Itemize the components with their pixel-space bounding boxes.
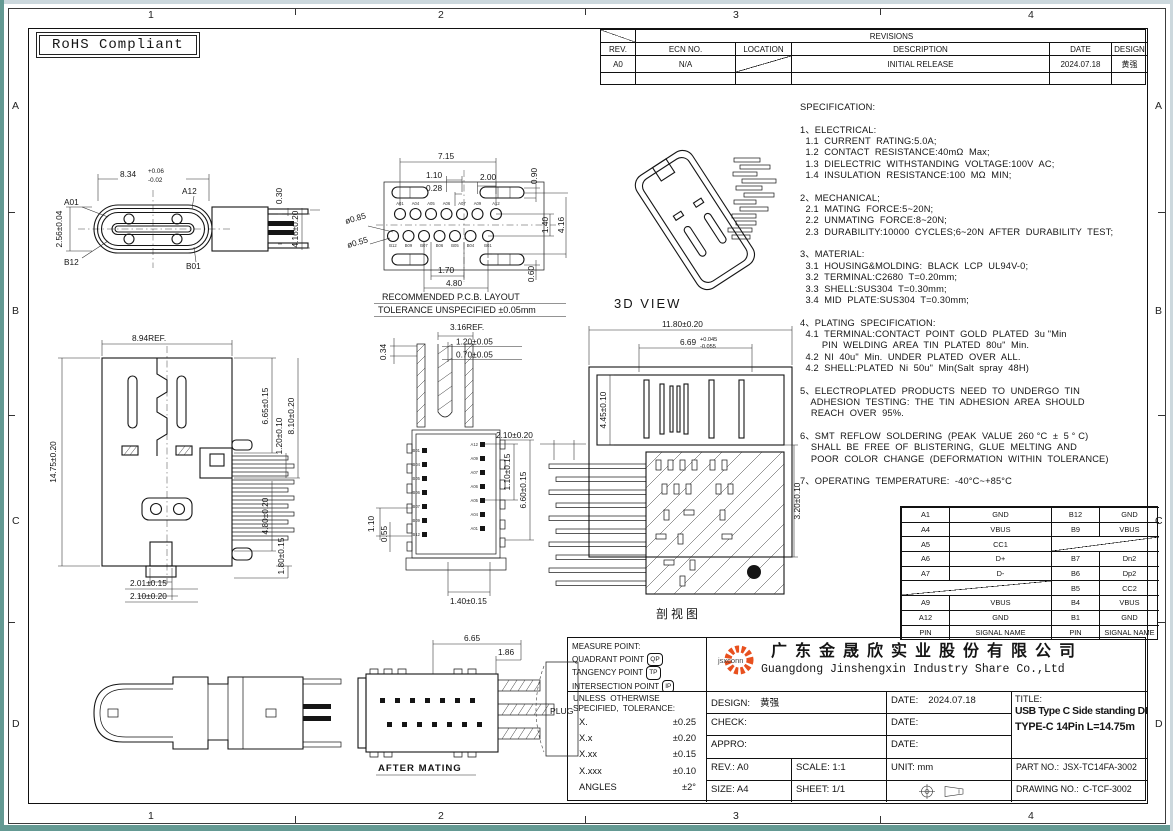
dim-445: 4.45±0.10 xyxy=(598,391,608,428)
iso-leads xyxy=(728,158,776,239)
section-dot xyxy=(747,565,761,579)
front-view-centerlines xyxy=(78,190,230,268)
part-title-line2: TYPE-C 14Pin L=14.75m xyxy=(1015,719,1144,736)
zone-number: 3 xyxy=(733,810,739,822)
pcb-pads-top xyxy=(395,209,502,220)
mating-plug-hatch xyxy=(502,680,549,739)
svg-text:B04: B04 xyxy=(413,462,421,467)
pin-cell: GND xyxy=(1099,507,1159,522)
dim-669-up: +0.045 xyxy=(700,337,717,343)
dim-316: 3.16REF. xyxy=(450,322,484,332)
size-cell: SIZE: A4 xyxy=(706,780,791,802)
pin-label-a12: A12 xyxy=(182,186,197,196)
pin-cell: A12 xyxy=(901,610,949,625)
tolerance-row: X.±0.25 xyxy=(573,714,706,730)
svg-text:B07: B07 xyxy=(420,243,428,248)
rohs-stamp: RoHS Compliant xyxy=(36,32,200,58)
side-pins-left xyxy=(422,448,427,537)
svg-text:B01: B01 xyxy=(413,448,421,453)
svg-text:A01: A01 xyxy=(471,526,479,531)
dim-665m: 6.65 xyxy=(464,633,481,643)
svg-text:A05: A05 xyxy=(427,201,435,206)
dim-total-height: 4.16±0.20 xyxy=(290,210,300,247)
zone-letter: B xyxy=(1155,305,1162,317)
pin-label-b12: B12 xyxy=(64,257,79,267)
svg-text:B05: B05 xyxy=(413,476,421,481)
pin-label-b01: B01 xyxy=(186,261,201,271)
revisions-header: REV. xyxy=(601,42,635,55)
zone-tick xyxy=(8,415,15,416)
pcb-layout-drawing: A01 A04 A05 A06 A07 A09 A12 B12 B09 B07 … xyxy=(338,132,600,320)
zone-number: 4 xyxy=(1028,810,1034,822)
zone-number: 1 xyxy=(148,9,154,21)
pcb-caption-1: RECOMMENDED P.C.B. LAYOUT xyxy=(382,292,520,302)
dim-416: 4.16 xyxy=(556,217,566,234)
revisions-header: DESIGN xyxy=(1111,42,1147,55)
unit-cell: UNIT: mm xyxy=(886,758,1011,780)
revision-design: 黄强 xyxy=(1111,55,1147,72)
dim-070: 0.70±0.05 xyxy=(456,350,493,360)
title-cell: TITLE: USB Type C Side standing DIP TYPE… xyxy=(1011,691,1147,758)
dim-034: 0.34 xyxy=(378,344,388,361)
pin-cell: B5 xyxy=(1051,580,1099,595)
dim-height: 2.56±0.04 xyxy=(54,210,64,247)
svg-text:A04: A04 xyxy=(412,201,420,206)
dim-width-tol-dn: -0.02 xyxy=(148,177,163,184)
dim-669-dn: -0.055 xyxy=(700,344,716,350)
dim-width-tol-up: +0.06 xyxy=(148,168,164,175)
svg-text:B05: B05 xyxy=(451,243,459,248)
revision-location-cell xyxy=(735,55,791,72)
page-edge-top xyxy=(0,0,1173,4)
mating-view-drawing: PLUG 6.65 1.86 AFTER MATING xyxy=(78,632,578,788)
dim-665: 6.65±0.15 xyxy=(260,387,270,424)
zone-number: 2 xyxy=(438,9,444,21)
company-name-en: Guangdong Jinshengxin Industry Share Co.… xyxy=(761,662,1145,678)
revisions-header: LOCATION xyxy=(735,42,791,55)
dim-120: 1.20±0.10 xyxy=(274,417,284,454)
revision-ecn: N/A xyxy=(635,55,735,72)
after-mating-caption: AFTER MATING xyxy=(378,763,462,774)
svg-text:A06: A06 xyxy=(471,484,479,489)
revision-rev: A0 xyxy=(601,55,635,72)
dim-110s: 1.10 xyxy=(366,516,376,533)
pin-cell: B4 xyxy=(1051,595,1099,610)
dim-810: 8.10±0.20 xyxy=(286,397,296,434)
svg-text:A06: A06 xyxy=(443,201,451,206)
tolerance-row: X.xxx±0.10 xyxy=(573,763,706,779)
dim-140s: 1.40±0.15 xyxy=(450,596,487,606)
measure-point-line: TANGENCY POINTTP xyxy=(572,666,702,680)
svg-text:A09: A09 xyxy=(471,456,479,461)
pin-cell: B12 xyxy=(1051,507,1099,522)
pin-cell: CC1 xyxy=(949,536,1051,551)
dim-140: 1.40 xyxy=(540,217,550,234)
zone-number: 2 xyxy=(438,810,444,822)
revisions-title: REVISIONS xyxy=(635,30,1147,42)
zone-tick xyxy=(295,816,296,823)
pin-cell: Dp2 xyxy=(1099,566,1159,581)
sheet-cell: SHEET: 1/1 xyxy=(791,780,886,802)
svg-text:B09: B09 xyxy=(405,243,413,248)
pin-cell: B1 xyxy=(1051,610,1099,625)
svg-text:A05: A05 xyxy=(471,498,479,503)
measure-point-cell: MEASURE POINT: QUADRANT POINTQP TANGENCY… xyxy=(568,638,706,691)
dim-lead: 0.30 xyxy=(274,188,284,205)
tolerance-cell: UNLESS OTHERWISE SPECIFIED, TOLERANCE: X… xyxy=(568,691,706,802)
top-view-dim-lines xyxy=(58,340,300,602)
revisions-header: DESCRIPTION xyxy=(791,42,1049,55)
section-windows xyxy=(656,460,733,586)
dim-1180: 11.80±0.20 xyxy=(662,319,703,329)
zone-tick xyxy=(585,816,586,823)
revision-date: 2024.07.18 xyxy=(1049,55,1111,72)
section-lead-comb xyxy=(549,464,646,586)
revisions-empty-cell xyxy=(635,72,735,84)
pcb-slot-dividers xyxy=(410,187,510,265)
side-edge-combs xyxy=(407,440,505,551)
pin-cell: VBUS xyxy=(949,595,1051,610)
date1-cell: DATE:2024.07.18 xyxy=(886,691,1011,713)
page-edge-bottom xyxy=(0,825,1173,831)
projection-symbol-cell xyxy=(886,780,1011,802)
zone-tick xyxy=(880,816,881,823)
check-cell: CHECK: xyxy=(706,713,886,735)
dim-894: 8.94REF. xyxy=(132,333,166,343)
scale-cell: SCALE: 1:1 xyxy=(791,758,886,780)
svg-text:B12: B12 xyxy=(413,532,421,537)
svg-text:B12: B12 xyxy=(389,243,397,248)
dim-1475: 14.75±0.20 xyxy=(48,441,58,483)
rev-cell: REV.: A0 xyxy=(706,758,791,780)
measure-point-line: MEASURE POINT: xyxy=(572,641,702,653)
svg-text:A09: A09 xyxy=(474,201,482,206)
dim-320: 3.20±0.10 xyxy=(792,482,802,519)
pin-cell: GND xyxy=(949,610,1051,625)
svg-text:B04: B04 xyxy=(467,243,475,248)
company-logo-icon: jsxconn xyxy=(715,642,761,686)
zone-number: 3 xyxy=(733,9,739,21)
zone-tick xyxy=(8,622,15,623)
rohs-label: RoHS Compliant xyxy=(39,35,197,55)
dim-055: 0.55 xyxy=(379,526,389,543)
section-shell xyxy=(589,367,792,557)
section-caption: 剖视图 xyxy=(656,606,701,621)
pin-cell: GND xyxy=(949,507,1051,522)
section-dim-lines xyxy=(540,326,798,557)
date3-cell: DATE: xyxy=(886,735,1011,758)
svg-text:A12: A12 xyxy=(492,201,500,206)
dim-170: 1.70 xyxy=(438,265,455,275)
svg-text:B07: B07 xyxy=(413,504,421,509)
revision-description: INITIAL RELEASE xyxy=(791,55,1049,72)
iso-view-drawing: 3D VIEW xyxy=(606,122,802,318)
mating-dim-lines xyxy=(433,640,521,674)
zone-letter: C xyxy=(12,515,20,527)
revisions-header: ECN NO. xyxy=(635,42,735,55)
svg-text:B06: B06 xyxy=(436,243,444,248)
revisions-table: REVISIONS REV. ECN NO. LOCATION DESCRIPT… xyxy=(600,29,1146,85)
pin-assignment-table: A1 GND B12 GND A4 VBUS B9 VBUS A5 CC1 A6… xyxy=(900,506,1158,640)
pcb-slots xyxy=(392,187,524,265)
measure-point-line: INTERSECTION POINTIP xyxy=(572,680,702,692)
iso-view-label: 3D VIEW xyxy=(614,296,681,311)
tolerance-row: X.x±0.20 xyxy=(573,730,706,746)
tolerance-row: ANGLES±2° xyxy=(573,779,706,795)
svg-text:A07: A07 xyxy=(458,201,466,206)
dim-060: 0.60 xyxy=(526,266,536,283)
dim-669: 6.69 xyxy=(680,337,697,347)
dim-201: 2.01±0.15 xyxy=(130,578,167,588)
pin-cell: A7 xyxy=(901,566,949,581)
dim-210sec: 2.10±0.20 xyxy=(496,430,533,440)
section-hatch xyxy=(646,452,784,594)
drawing-no-cell: DRAWING NO.:C-TCF-3002 xyxy=(1011,780,1147,802)
dim-180: 1.80±0.15 xyxy=(276,537,286,574)
dim-120s: 1.20±0.05 xyxy=(456,337,493,347)
pin-cell: A5 xyxy=(901,536,949,551)
revisions-header: DATE xyxy=(1049,42,1111,55)
projection-symbols-icon xyxy=(917,784,977,799)
pin-cell: B9 xyxy=(1051,522,1099,537)
zone-letter: D xyxy=(12,718,20,730)
title-block: MEASURE POINT: QUADRANT POINTQP TANGENCY… xyxy=(567,637,1146,801)
specification-text: SPECIFICATION: 1、ELECTRICAL: 1.1 CURRENT… xyxy=(800,102,1148,488)
dim-090: 0.90 xyxy=(529,168,539,185)
dim-480t: 4.80±0.20 xyxy=(260,497,270,534)
dim-715: 7.15 xyxy=(438,151,455,161)
pin-cell-diagonal xyxy=(1051,536,1159,551)
zone-tick xyxy=(1158,415,1165,416)
pin-cell: A6 xyxy=(901,551,949,566)
title-label: TITLE: xyxy=(1015,694,1144,704)
tolerance-header: UNLESS OTHERWISE SPECIFIED, TOLERANCE: xyxy=(573,694,706,714)
pin-cell: CC2 xyxy=(1099,580,1159,595)
zone-letter: A xyxy=(1155,100,1162,112)
pin-cell-diagonal xyxy=(901,580,1051,595)
zone-letter: B xyxy=(12,305,19,317)
zone-number: 1 xyxy=(148,810,154,822)
pin-cell: VBUS xyxy=(1099,595,1159,610)
pin-cell: VBUS xyxy=(949,522,1051,537)
tolerance-row: X.xx±0.15 xyxy=(573,746,706,762)
zone-tick xyxy=(585,8,586,15)
mating-left-mid-leads xyxy=(303,704,331,721)
revisions-empty-cell xyxy=(735,72,791,84)
measure-point-line: QUADRANT POINTQP xyxy=(572,653,702,667)
front-view-drawing: 8.34 +0.06 -0.02 2.56±0.04 0.30 4.16±0.2… xyxy=(36,134,326,292)
svg-text:A04: A04 xyxy=(471,512,479,517)
pin-cell: A1 xyxy=(901,507,949,522)
zone-tick xyxy=(880,8,881,15)
date2-cell: DATE: xyxy=(886,713,1011,735)
pin-label-a01: A01 xyxy=(64,197,79,207)
logo-text: jsxconn xyxy=(717,656,743,665)
pin-cell: D- xyxy=(949,566,1051,581)
svg-text:B06: B06 xyxy=(413,490,421,495)
top-view-drawing: 8.94REF. 14.75±0.20 6.65±0.15 1.20±0.10 … xyxy=(30,316,335,624)
tp-badge: TP xyxy=(646,666,660,680)
section-view-drawing: 11.80±0.20 6.69 +0.045 -0.055 4.45±0.10 … xyxy=(494,312,806,630)
mating-left-profile xyxy=(94,677,341,749)
company-name-cn: 广东金晟欣实业股份有限公司 xyxy=(771,642,1145,662)
pin-cell: B6 xyxy=(1051,566,1099,581)
revisions-empty-cell xyxy=(1049,72,1111,84)
part-title-line1: USB Type C Side standing DIP xyxy=(1015,704,1144,719)
design-cell: DESIGN:黄强 xyxy=(706,691,886,713)
pin-cell: B7 xyxy=(1051,551,1099,566)
zone-tick xyxy=(8,212,15,213)
qp-badge: QP xyxy=(647,653,662,667)
side-pins-right xyxy=(480,442,485,531)
revisions-empty-cell xyxy=(601,72,635,84)
dim-200: 2.00 xyxy=(480,172,497,182)
pcb-pads-bottom xyxy=(388,231,494,242)
svg-text:B09: B09 xyxy=(413,518,421,523)
pin-cell: VBUS xyxy=(1099,522,1159,537)
mating-receptacle xyxy=(358,669,498,757)
revisions-empty-cell xyxy=(1111,72,1147,84)
dim-028: 0.28 xyxy=(426,183,443,193)
zone-letter: D xyxy=(1155,718,1163,730)
zone-tick xyxy=(1158,622,1165,623)
dim-186: 1.86 xyxy=(498,647,515,657)
svg-text:B01: B01 xyxy=(484,243,492,248)
dim-d085: ø0.85 xyxy=(344,210,368,226)
zone-tick xyxy=(295,8,296,15)
pin-cell: A9 xyxy=(901,595,949,610)
zone-tick xyxy=(1158,212,1165,213)
dim-480: 4.80 xyxy=(446,278,463,288)
side-shell xyxy=(406,344,506,570)
zone-letter: A xyxy=(12,100,19,112)
pin-cell: A4 xyxy=(901,522,949,537)
dim-210t: 2.10±0.20 xyxy=(130,591,167,601)
company-cell: jsxconn 广东金晟欣实业股份有限公司 Guangdong Jinsheng… xyxy=(706,638,1147,691)
drawing-sheet: 1 2 3 4 1 2 3 4 A B C D A B C D RoHS Com… xyxy=(0,0,1173,831)
revisions-empty-cell xyxy=(791,72,1049,84)
ip-badge: IP xyxy=(662,680,674,692)
plug-label: PLUG xyxy=(550,706,574,716)
part-no-cell: PART NO.:JSX-TC14FA-3002 xyxy=(1011,758,1147,780)
svg-text:A12: A12 xyxy=(471,442,479,447)
revisions-corner-cell xyxy=(601,30,635,42)
top-view-outline xyxy=(102,358,252,577)
pin-cell: GND xyxy=(1099,610,1159,625)
dim-110: 1.10 xyxy=(426,170,443,180)
page-edge-left xyxy=(0,0,4,831)
dim-d055: ø0.55 xyxy=(346,234,370,250)
dim-width: 8.34 xyxy=(120,169,137,179)
mating-receptacle-pins xyxy=(380,698,482,727)
pin-cell: Dn2 xyxy=(1099,551,1159,566)
zone-number: 4 xyxy=(1028,9,1034,21)
svg-text:A07: A07 xyxy=(471,470,479,475)
svg-text:A01: A01 xyxy=(396,201,404,206)
appro-cell: APPRO: xyxy=(706,735,886,758)
pin-cell: D+ xyxy=(949,551,1051,566)
